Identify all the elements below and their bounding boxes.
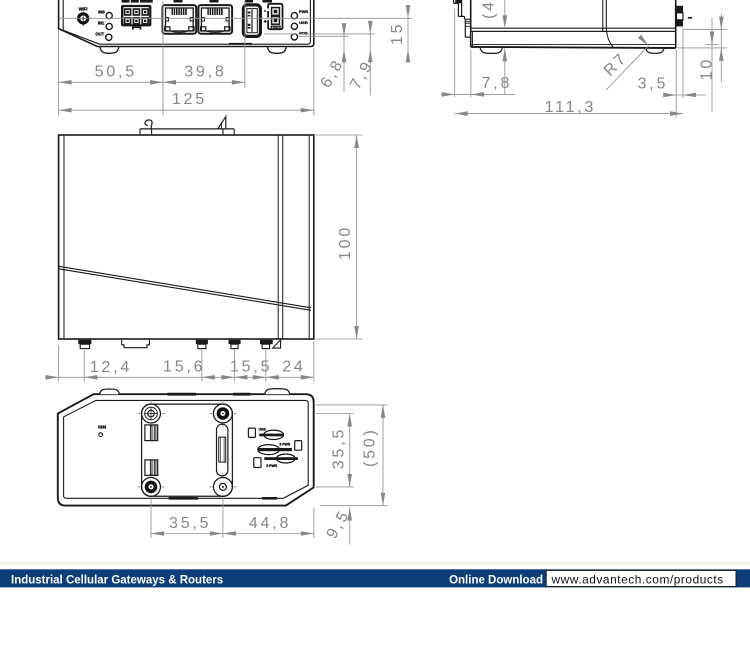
svg-text:3,5: 3,5 — [638, 75, 669, 92]
svg-text:(50): (50) — [361, 427, 378, 467]
svg-text:10: 10 — [699, 57, 716, 80]
svg-text:50,5: 50,5 — [95, 64, 137, 81]
svg-text:IN0: IN0 — [98, 9, 105, 14]
svg-text:15: 15 — [389, 22, 406, 45]
svg-text:12,4: 12,4 — [90, 359, 132, 376]
svg-text:USR: USR — [299, 20, 308, 25]
svg-text:OUT: OUT — [95, 31, 104, 36]
svg-text:IN1: IN1 — [98, 20, 105, 25]
svg-text:125: 125 — [172, 91, 207, 108]
svg-text:PWR: PWR — [299, 9, 308, 14]
svg-text:35,5: 35,5 — [169, 515, 211, 532]
svg-text:WiFi: WiFi — [79, 7, 88, 12]
svg-text:(45: (45 — [481, 0, 498, 19]
svg-text:SIM: SIM — [98, 424, 106, 429]
svg-text:Industrial Cellular Gateways &: Industrial Cellular Gateways & Routers — [11, 575, 223, 587]
svg-text:44,8: 44,8 — [249, 515, 291, 532]
svg-text:POE: POE — [299, 30, 308, 35]
svg-text:7,8: 7,8 — [482, 75, 513, 92]
svg-text:100: 100 — [337, 225, 354, 260]
svg-text:15,6: 15,6 — [163, 358, 205, 375]
svg-text:3 PWR: 3 PWR — [279, 443, 290, 447]
svg-text:39,8: 39,8 — [184, 64, 226, 81]
svg-text:111,3: 111,3 — [545, 99, 597, 116]
svg-text:www.advantech.com/products: www.advantech.com/products — [551, 572, 724, 586]
svg-text:15,5: 15,5 — [230, 358, 272, 375]
svg-text:24: 24 — [282, 358, 305, 375]
svg-text:5 PWR: 5 PWR — [266, 464, 277, 468]
svg-text:USB: USB — [259, 428, 267, 432]
svg-text:Online Download: Online Download — [449, 575, 543, 587]
svg-text:35,5: 35,5 — [330, 427, 347, 469]
